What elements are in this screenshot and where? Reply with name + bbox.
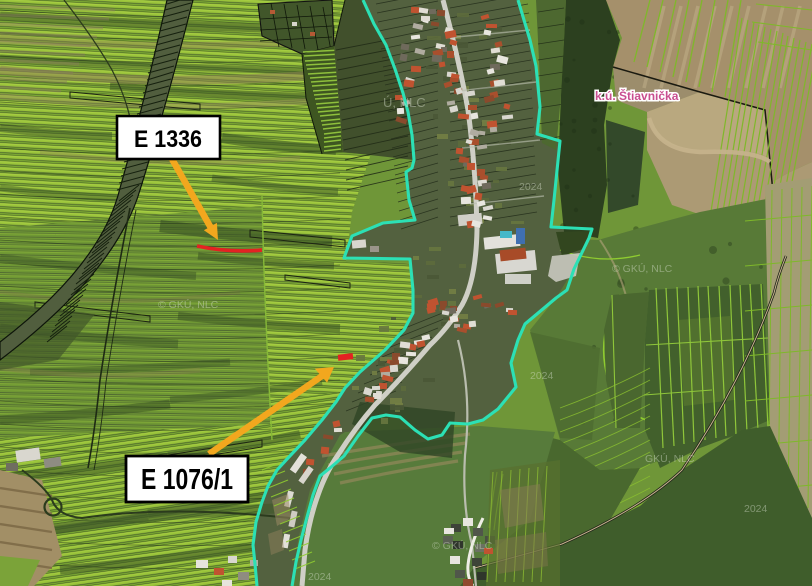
svg-text:2024: 2024 — [519, 181, 543, 193]
svg-text:k.ú. Štiavnička: k.ú. Štiavnička — [595, 88, 679, 103]
svg-text:© GKÚ, NLC: © GKÚ, NLC — [432, 539, 493, 552]
svg-text:© GKÚ, NLC: © GKÚ, NLC — [158, 298, 219, 311]
svg-text:E 1336: E 1336 — [134, 126, 202, 153]
svg-text:2024: 2024 — [744, 503, 768, 515]
svg-text:2024: 2024 — [308, 571, 332, 583]
svg-text:Ú, NLC: Ú, NLC — [383, 95, 426, 110]
svg-text:© GKÚ, NLC: © GKÚ, NLC — [612, 262, 673, 275]
svg-text:2024: 2024 — [530, 370, 554, 382]
svg-text:GKÚ, NLC: GKÚ, NLC — [645, 452, 695, 465]
svg-text:E 1076/1: E 1076/1 — [141, 464, 233, 496]
